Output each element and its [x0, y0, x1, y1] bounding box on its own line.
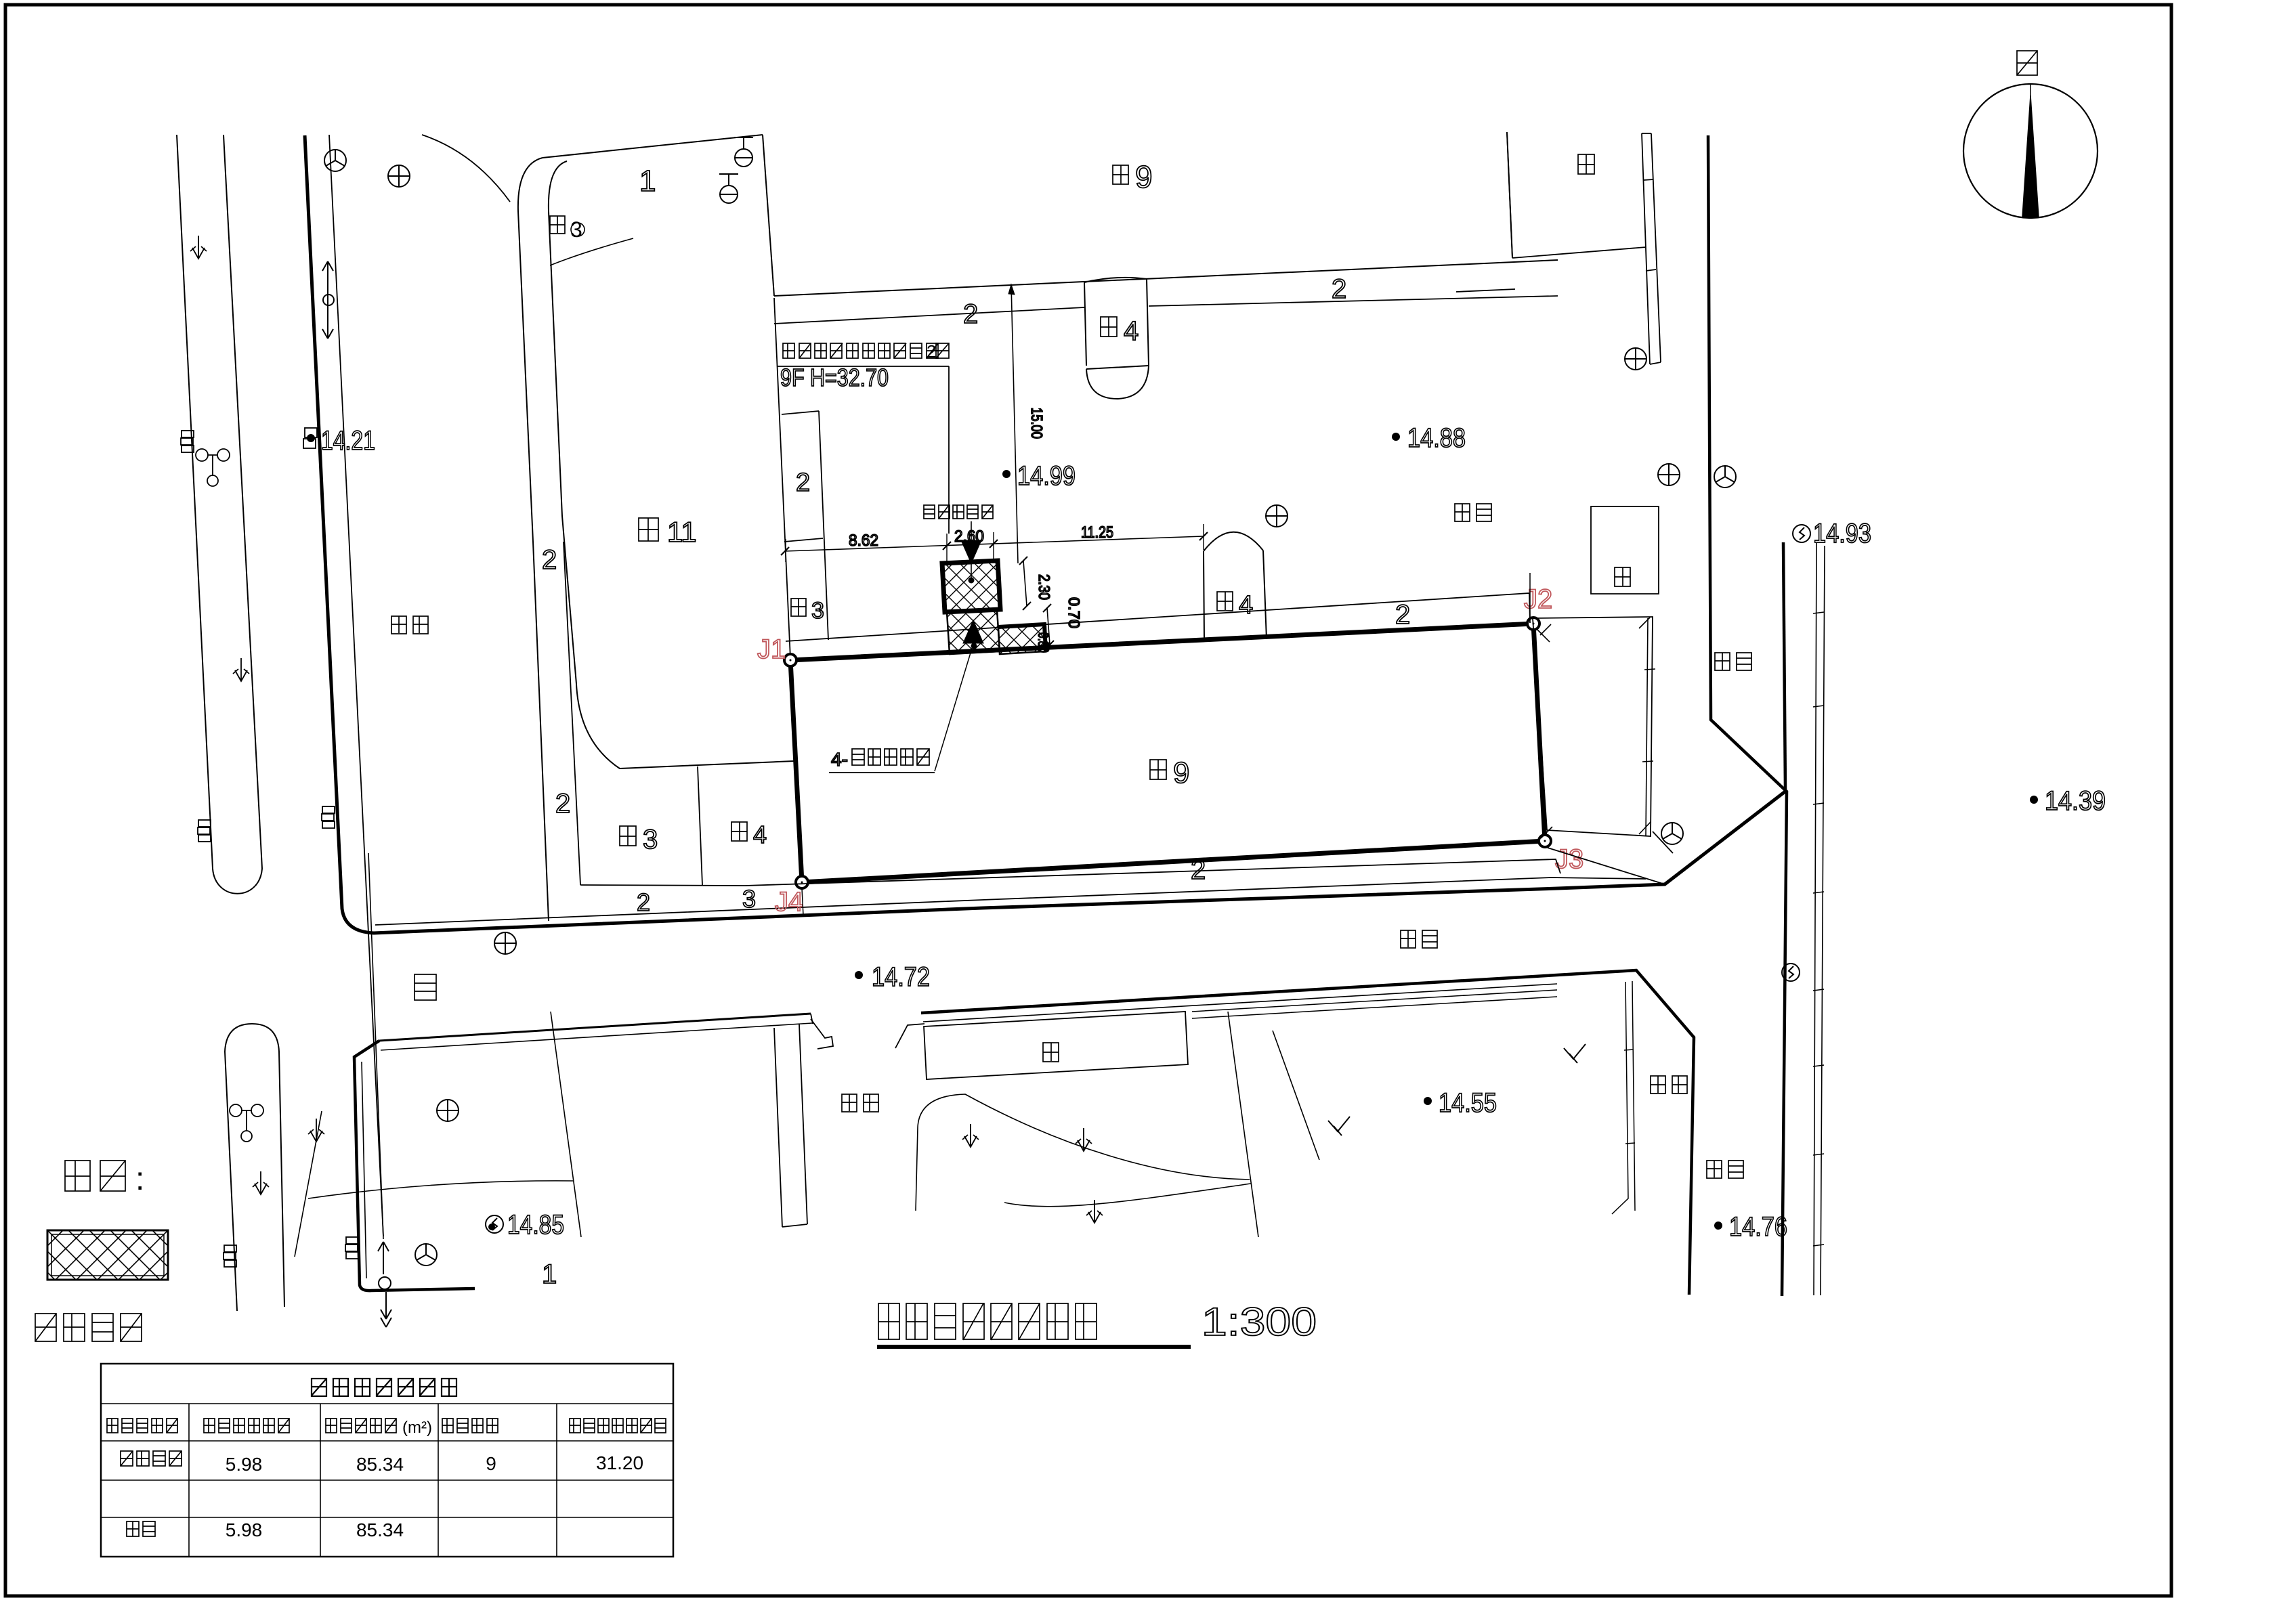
- svg-text:2: 2: [927, 341, 936, 362]
- svg-text:14.85: 14.85: [507, 1210, 564, 1240]
- svg-text:3: 3: [742, 885, 756, 913]
- svg-text:2.30: 2.30: [1036, 574, 1053, 600]
- svg-text:3: 3: [811, 598, 824, 624]
- svg-text:2: 2: [1332, 274, 1346, 304]
- svg-text:2: 2: [555, 789, 570, 819]
- svg-text:14.76: 14.76: [1729, 1212, 1787, 1242]
- svg-text:11: 11: [667, 516, 697, 548]
- svg-text:4: 4: [1124, 316, 1139, 346]
- svg-text:9: 9: [1173, 756, 1189, 790]
- svg-text:14.99: 14.99: [1017, 461, 1076, 491]
- svg-text:2: 2: [963, 299, 978, 329]
- svg-text:3: 3: [643, 825, 658, 855]
- svg-text:2: 2: [796, 469, 810, 497]
- svg-text:15.00: 15.00: [1028, 408, 1046, 439]
- svg-text:9: 9: [1135, 159, 1153, 194]
- svg-text:85.34: 85.34: [356, 1519, 404, 1540]
- svg-text:2: 2: [637, 888, 650, 916]
- svg-text:2: 2: [1191, 855, 1206, 885]
- svg-text:14.21: 14.21: [321, 426, 375, 456]
- svg-text:1: 1: [542, 1259, 557, 1289]
- svg-text:85.34: 85.34: [356, 1454, 404, 1475]
- svg-text:J4: J4: [775, 887, 803, 917]
- svg-text:1: 1: [639, 165, 656, 198]
- svg-text:(m²): (m²): [402, 1419, 432, 1437]
- svg-text:11.25: 11.25: [1081, 523, 1113, 542]
- svg-text:14.39: 14.39: [2045, 786, 2106, 816]
- svg-text:4: 4: [1239, 591, 1253, 620]
- svg-text:8.62: 8.62: [849, 532, 878, 550]
- svg-text:4-: 4-: [831, 749, 848, 770]
- svg-text:14.88: 14.88: [1407, 423, 1466, 453]
- svg-text:3: 3: [570, 217, 582, 242]
- svg-text:31.20: 31.20: [596, 1452, 643, 1473]
- svg-text:1:300: 1:300: [1202, 1300, 1317, 1344]
- svg-text:2: 2: [542, 545, 557, 575]
- svg-text:J2: J2: [1524, 584, 1552, 614]
- svg-text::: :: [135, 1161, 144, 1197]
- svg-text:2: 2: [1395, 600, 1410, 630]
- svg-text:14.93: 14.93: [1813, 519, 1871, 548]
- svg-text:J1: J1: [757, 634, 786, 664]
- svg-text:14.72: 14.72: [872, 962, 930, 992]
- svg-text:14.55: 14.55: [1439, 1088, 1497, 1118]
- svg-text:9: 9: [486, 1453, 496, 1474]
- svg-text:0.70: 0.70: [1065, 597, 1083, 628]
- svg-text:9F H=32.70: 9F H=32.70: [780, 364, 889, 391]
- svg-text:5.98: 5.98: [226, 1454, 263, 1475]
- svg-text:4: 4: [753, 821, 767, 848]
- svg-text:5.98: 5.98: [226, 1519, 263, 1540]
